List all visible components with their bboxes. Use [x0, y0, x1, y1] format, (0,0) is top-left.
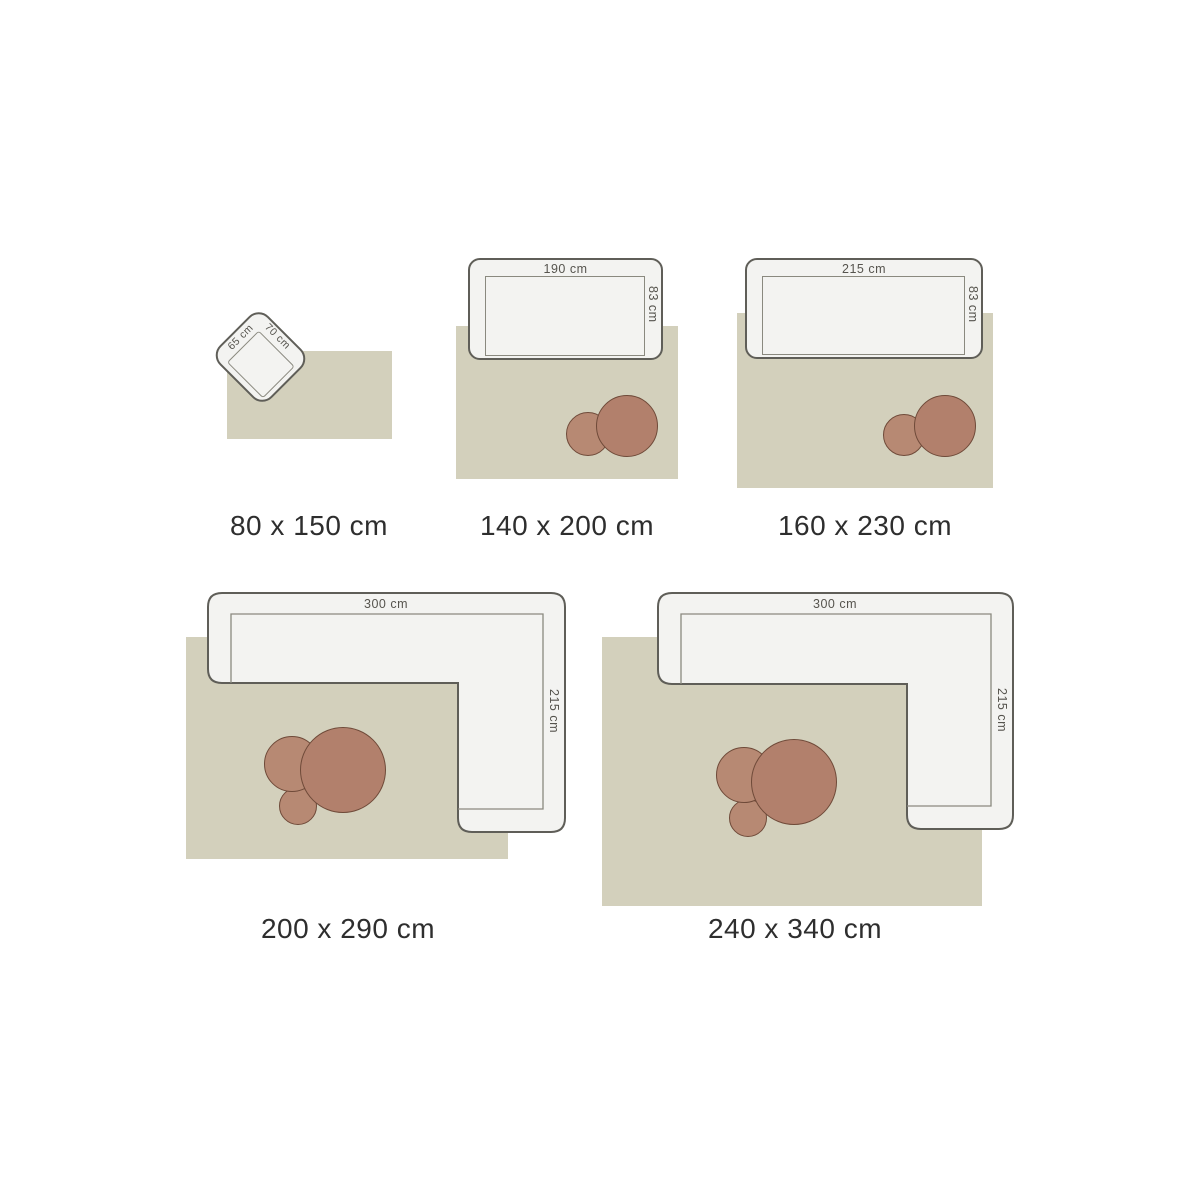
sofa-icon: 190 cm 83 cm	[468, 258, 663, 360]
dimension-label-depth: 215 cm	[995, 688, 1009, 732]
coffee-table-icon	[300, 727, 386, 813]
corner-sofa-icon: 300 cm 215 cm	[658, 593, 1013, 829]
corner-sofa-icon: 300 cm 215 cm	[208, 593, 565, 832]
dimension-label-width: 300 cm	[364, 597, 408, 611]
coffee-table-icon	[596, 395, 658, 457]
sofa-seat-line	[762, 276, 965, 355]
dimension-label-depth: 83 cm	[966, 286, 980, 323]
size-caption: 140 x 200 cm	[417, 511, 717, 541]
coffee-table-icon	[914, 395, 976, 457]
size-caption: 200 x 290 cm	[198, 914, 498, 944]
corner-sofa-outline	[208, 593, 565, 832]
sofa-seat-line	[485, 276, 645, 356]
size-caption: 80 x 150 cm	[159, 511, 459, 541]
size-caption: 240 x 340 cm	[645, 914, 945, 944]
dimension-label-depth: 83 cm	[646, 286, 660, 323]
dimension-label-width: 300 cm	[813, 597, 857, 611]
rug-size-guide: 65 cm 70 cm 80 x 150 cm 190 cm 83 cm 140…	[0, 0, 1200, 1200]
size-caption: 160 x 230 cm	[715, 511, 1015, 541]
coffee-table-icon	[751, 739, 837, 825]
sofa-icon: 215 cm 83 cm	[745, 258, 983, 359]
corner-sofa-outline	[658, 593, 1013, 829]
dimension-label-depth: 215 cm	[547, 689, 561, 733]
